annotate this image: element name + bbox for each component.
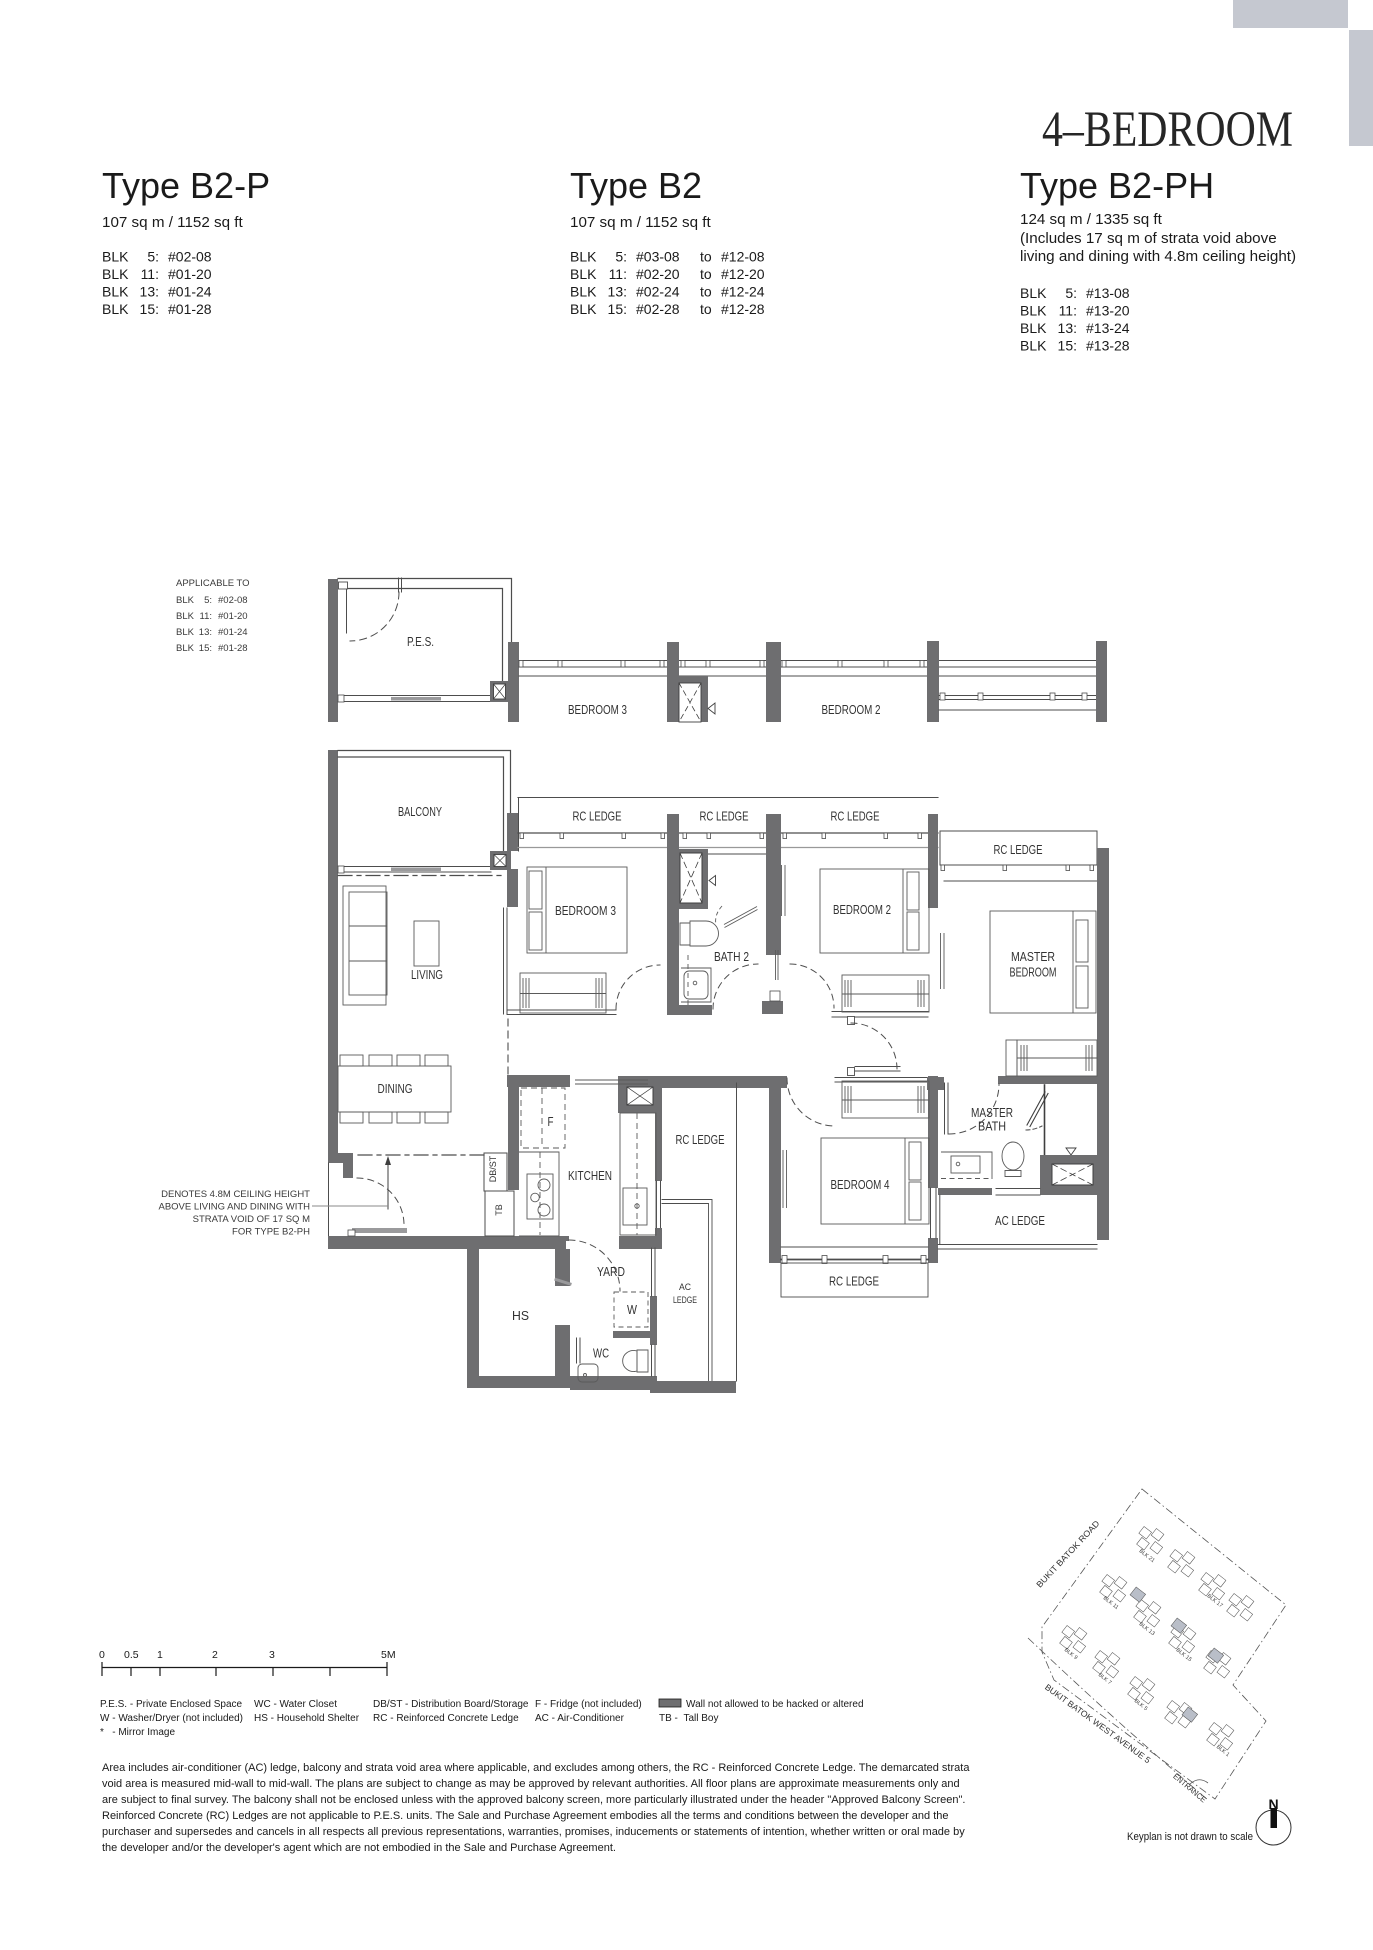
svg-text:Type B2-P: Type B2-P [102,165,270,206]
svg-text:#01-28: #01-28 [168,301,212,317]
svg-text:107 sq m / 1152 sq ft: 107 sq m / 1152 sq ft [102,214,243,231]
svg-text:13:: 13: [1058,320,1077,336]
svg-text:W - Washer/Dryer (not included: W - Washer/Dryer (not included) [100,1713,243,1724]
svg-text:ABOVE LIVING AND DINING WITH: ABOVE LIVING AND DINING WITH [159,1202,311,1213]
svg-text:LIVING: LIVING [411,968,443,982]
svg-text:11:: 11: [609,266,627,282]
svg-text:BLK: BLK [176,627,195,638]
svg-text:WC: WC [593,1347,609,1361]
svg-text:BLK: BLK [570,301,597,317]
svg-text:ENTRANCE: ENTRANCE [1171,1772,1207,1805]
svg-text:BALCONY: BALCONY [398,805,442,819]
svg-text:RC LEDGE: RC LEDGE [700,809,749,824]
svg-text:to: to [700,284,712,300]
svg-text:RC - Reinforced Concrete Ledge: RC - Reinforced Concrete Ledge [373,1713,519,1724]
svg-text:to: to [700,301,712,317]
svg-text:BEDROOM 3: BEDROOM 3 [555,904,616,918]
svg-text:#12-20: #12-20 [721,266,765,282]
svg-text:HS - Household Shelter: HS - Household Shelter [254,1713,360,1724]
svg-text:STRATA VOID OF 17 SQ M: STRATA VOID OF 17 SQ M [193,1214,310,1225]
svg-text:APPLICABLE TO: APPLICABLE TO [176,578,250,589]
svg-text:BEDROOM 2: BEDROOM 2 [833,903,891,917]
svg-text:#13-08: #13-08 [1086,285,1130,301]
svg-text:5:: 5: [1065,285,1077,301]
svg-text:#12-28: #12-28 [721,301,765,317]
svg-text:13:: 13: [199,627,212,638]
svg-text:AC - Air-Conditioner: AC - Air-Conditioner [535,1713,625,1724]
svg-text:the developer and/or the devel: the developer and/or the developer's age… [102,1842,616,1854]
svg-text:Wall not allowed to be hacked: Wall not allowed to be hacked or altered [686,1699,864,1710]
svg-text:MASTER: MASTER [971,1106,1013,1120]
svg-text:#01-28: #01-28 [218,643,248,654]
svg-text:#02-20: #02-20 [636,266,680,282]
svg-text:W: W [627,1303,637,1317]
svg-text:* - Mirror Image: * - Mirror Image [100,1727,175,1738]
svg-text:#13-20: #13-20 [1086,303,1130,319]
svg-text:#03-08: #03-08 [636,249,680,265]
svg-text:BUKIT BATOK ROAD: BUKIT BATOK ROAD [1034,1518,1101,1589]
svg-text:BLK: BLK [1020,285,1047,301]
svg-text:DENOTES 4.8M CEILING HEIGHT: DENOTES 4.8M CEILING HEIGHT [161,1189,310,1200]
svg-text:2: 2 [212,1649,218,1661]
svg-text:RC LEDGE: RC LEDGE [573,809,622,824]
svg-text:11:: 11: [141,266,159,282]
svg-text:FOR TYPE B2-PH: FOR TYPE B2-PH [232,1227,310,1238]
svg-text:Reinforced Concrete (RC) Ledge: Reinforced Concrete (RC) Ledges are not … [102,1810,949,1822]
svg-text:#01-20: #01-20 [168,266,212,282]
svg-text:BLK: BLK [102,249,129,265]
svg-text:#13-28: #13-28 [1086,338,1130,354]
svg-text:BLK: BLK [102,284,129,300]
svg-text:#01-24: #01-24 [168,284,212,300]
svg-text:BLK: BLK [102,301,129,317]
svg-text:Keyplan is not drawn to scale: Keyplan is not drawn to scale [1127,1831,1253,1843]
svg-text:RC LEDGE: RC LEDGE [994,842,1043,857]
svg-text:11:: 11: [1059,303,1077,319]
svg-text:KITCHEN: KITCHEN [568,1169,612,1183]
svg-text:LEDGE: LEDGE [673,1295,697,1306]
svg-text:MASTER: MASTER [1011,950,1055,964]
svg-text:15:: 15: [140,301,159,317]
svg-text:N: N [1268,1796,1278,1812]
svg-text:15:: 15: [1058,338,1077,354]
svg-text:15:: 15: [608,301,627,317]
svg-text:BLK: BLK [102,266,129,282]
svg-text:#12-08: #12-08 [721,249,765,265]
svg-text:BLK: BLK [570,284,597,300]
svg-text:AC: AC [679,1282,691,1293]
svg-text:RC LEDGE: RC LEDGE [831,809,880,824]
svg-text:#01-24: #01-24 [218,627,248,638]
svg-text:#02-08: #02-08 [218,595,248,606]
svg-text:BLK: BLK [176,595,195,606]
svg-text:BATH: BATH [978,1120,1006,1134]
svg-text:5:: 5: [147,249,159,265]
svg-text:BATH 2: BATH 2 [714,950,749,964]
svg-text:BLK: BLK [570,249,597,265]
svg-text:11:: 11: [199,611,212,622]
svg-text:13:: 13: [140,284,159,300]
svg-text:RC LEDGE: RC LEDGE [829,1274,879,1289]
svg-text:YARD: YARD [597,1265,625,1279]
svg-text:BEDROOM: BEDROOM [1010,966,1057,980]
svg-text:DB/ST: DB/ST [488,1155,498,1182]
svg-text:to: to [700,266,712,282]
svg-text:Area includes air-conditioner: Area includes air-conditioner (AC) ledge… [102,1762,970,1774]
svg-text:#02-08: #02-08 [168,249,212,265]
svg-text:3: 3 [269,1649,275,1661]
svg-text:5:: 5: [204,595,212,606]
svg-text:are subject to final survey. T: are subject to final survey. The balcony… [102,1794,965,1806]
svg-text:TB: TB [494,1204,504,1216]
svg-text:5M: 5M [381,1649,396,1661]
svg-text:Type B2: Type B2 [570,165,702,206]
svg-text:P.E.S.: P.E.S. [407,635,434,649]
svg-text:living and dining with 4.8m ce: living and dining with 4.8m ceiling heig… [1020,248,1296,265]
svg-text:BLK: BLK [570,266,597,282]
svg-text:#01-20: #01-20 [218,611,248,622]
svg-text:#02-24: #02-24 [636,284,680,300]
svg-text:void area is measured mid-wall: void area is measured mid-wall to mid-wa… [102,1778,960,1790]
svg-text:13:: 13: [608,284,627,300]
svg-text:RC LEDGE: RC LEDGE [676,1132,725,1147]
svg-text:Type B2-PH: Type B2-PH [1020,165,1214,206]
svg-text:4–BEDROOM: 4–BEDROOM [1042,102,1293,158]
svg-text:BEDROOM 2: BEDROOM 2 [822,703,881,717]
svg-text:107 sq m / 1152 sq ft: 107 sq m / 1152 sq ft [570,214,711,231]
svg-text:AC LEDGE: AC LEDGE [995,1213,1045,1228]
svg-text:5:: 5: [615,249,627,265]
svg-text:0.5: 0.5 [124,1649,139,1661]
svg-text:to: to [700,249,712,265]
svg-text:(Includes 17 sq m of strata vo: (Includes 17 sq m of strata void above [1020,230,1277,247]
svg-text:#02-28: #02-28 [636,301,680,317]
svg-text:TB - Tall Boy: TB - Tall Boy [659,1713,718,1724]
svg-text:purchaser and supersedes and c: purchaser and supersedes and cancels in … [102,1826,965,1838]
svg-text:BEDROOM 4: BEDROOM 4 [831,1178,890,1192]
svg-text:DINING: DINING [378,1082,413,1096]
svg-text:F - Fridge (not included): F - Fridge (not included) [535,1699,642,1710]
svg-text:BLK: BLK [1020,320,1047,336]
svg-text:BLK: BLK [176,611,195,622]
svg-text:WC - Water Closet: WC - Water Closet [254,1699,337,1710]
svg-text:#12-24: #12-24 [721,284,765,300]
svg-text:#13-24: #13-24 [1086,320,1130,336]
svg-text:BLK: BLK [176,643,195,654]
svg-text:0: 0 [99,1649,105,1661]
svg-text:15:: 15: [199,643,212,654]
svg-text:BLK: BLK [1020,338,1047,354]
svg-text:BEDROOM 3: BEDROOM 3 [568,703,627,717]
svg-text:DB/ST - Distribution Board/Sto: DB/ST - Distribution Board/Storage [373,1699,529,1710]
svg-text:1: 1 [157,1649,163,1661]
svg-text:HS: HS [512,1309,529,1323]
svg-text:P.E.S. - Private Enclosed Spac: P.E.S. - Private Enclosed Space [100,1699,243,1710]
svg-text:F: F [548,1115,554,1129]
svg-text:124 sq m / 1335 sq ft: 124 sq m / 1335 sq ft [1020,211,1163,228]
svg-text:BLK: BLK [1020,303,1047,319]
